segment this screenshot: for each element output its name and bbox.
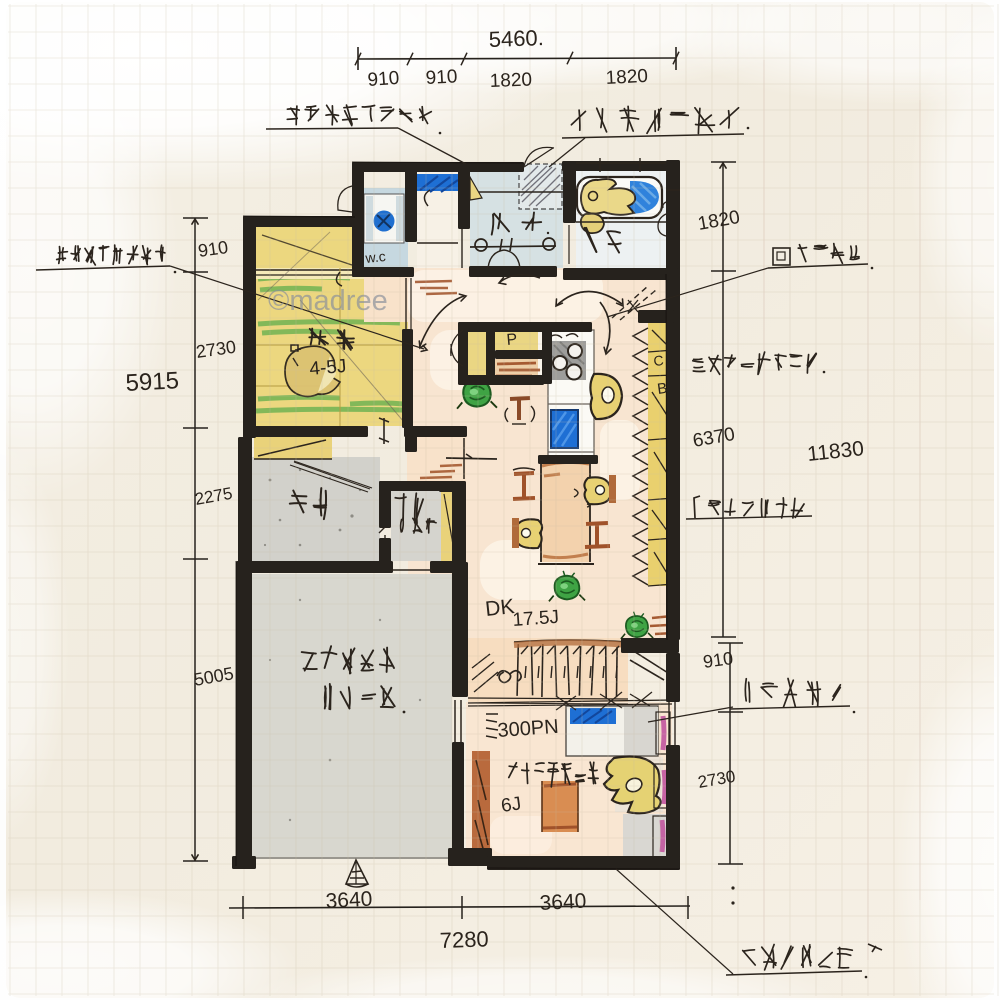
svg-text:5460.: 5460. bbox=[488, 25, 544, 52]
svg-text:3640: 3640 bbox=[539, 890, 587, 915]
svg-text:910: 910 bbox=[197, 237, 230, 261]
svg-text:5915: 5915 bbox=[125, 367, 180, 397]
svg-text:C: C bbox=[653, 352, 665, 369]
svg-text:©madree: ©madree bbox=[268, 285, 388, 317]
svg-text:17.5J: 17.5J bbox=[512, 607, 560, 631]
svg-text:910: 910 bbox=[367, 68, 400, 91]
svg-text:300PN: 300PN bbox=[497, 716, 560, 742]
svg-text:3640: 3640 bbox=[325, 888, 373, 913]
svg-text:4-5J: 4-5J bbox=[309, 356, 348, 380]
svg-text:1820: 1820 bbox=[605, 66, 648, 89]
svg-text:w.c: w.c bbox=[364, 248, 387, 266]
svg-text:910: 910 bbox=[425, 66, 458, 89]
svg-text:DK: DK bbox=[484, 595, 515, 621]
svg-text:7280: 7280 bbox=[439, 926, 489, 953]
svg-text:P: P bbox=[506, 331, 518, 349]
svg-text:1820: 1820 bbox=[489, 70, 532, 92]
svg-text:910: 910 bbox=[702, 648, 735, 672]
svg-text:6J: 6J bbox=[500, 793, 523, 817]
